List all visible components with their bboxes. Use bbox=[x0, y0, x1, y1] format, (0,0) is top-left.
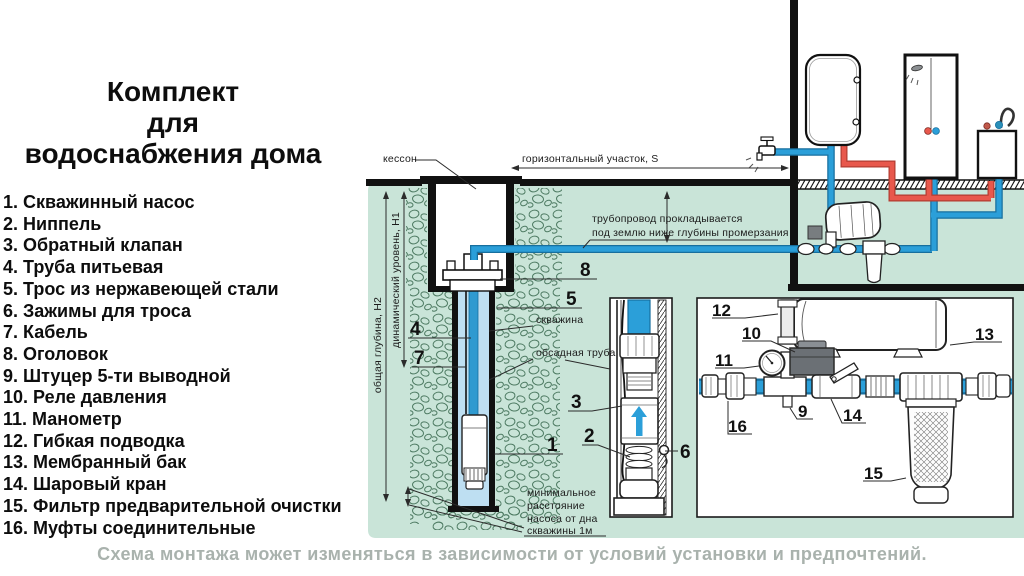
label-caisson: кессон bbox=[383, 153, 417, 165]
callout-3: 3 bbox=[571, 392, 582, 413]
installation-diagram: кессон горизонтальный участок, S трубопр… bbox=[0, 0, 1024, 576]
ground-line bbox=[366, 179, 422, 186]
outdoor-tap-icon bbox=[746, 137, 775, 172]
callout-8: 8 bbox=[580, 260, 591, 281]
label-min-distance-1: минимальное bbox=[527, 487, 596, 499]
label-borehole: скважина bbox=[536, 314, 583, 326]
caisson-lid bbox=[420, 176, 522, 184]
pump-detail-panel bbox=[610, 298, 672, 517]
drop-pipe-detail bbox=[628, 300, 650, 334]
callout-1: 1 bbox=[547, 435, 558, 456]
label-horizontal-section: горизонтальный участок, S bbox=[522, 153, 659, 165]
label-min-distance-3: насоса от дна bbox=[527, 513, 598, 525]
water-heater bbox=[806, 55, 860, 145]
footer-caption: Схема монтажа может изменяться в зависим… bbox=[0, 544, 1024, 565]
callout-12: 12 bbox=[712, 301, 731, 320]
label-casing-pipe: обсадная труба bbox=[536, 347, 616, 359]
callout-2: 2 bbox=[584, 426, 595, 447]
hot-knob bbox=[925, 128, 932, 135]
well-bore bbox=[448, 258, 499, 512]
callout-9: 9 bbox=[798, 402, 807, 421]
label-min-distance-4: скважины 1м bbox=[527, 525, 593, 537]
manometer bbox=[760, 351, 785, 376]
casing-wall bbox=[452, 290, 458, 508]
basement-floor bbox=[788, 284, 1024, 291]
sink bbox=[978, 109, 1016, 178]
cable-clamp bbox=[660, 446, 669, 455]
well-pump bbox=[462, 415, 487, 489]
callout-14: 14 bbox=[843, 406, 862, 425]
casing-wall bbox=[489, 290, 495, 508]
check-valve bbox=[621, 398, 658, 444]
flexible-hose bbox=[778, 300, 797, 344]
pump-top-detail bbox=[614, 480, 664, 515]
label-dynamic-level: динамический уровень, Н1 bbox=[390, 212, 402, 348]
callout-6: 6 bbox=[680, 442, 691, 463]
shower-cabin bbox=[905, 55, 957, 178]
cold-knob bbox=[933, 128, 940, 135]
label-total-depth: общая глубина, Н2 bbox=[372, 297, 384, 393]
callout-13: 13 bbox=[975, 325, 994, 344]
callout-15: 15 bbox=[864, 464, 883, 483]
label-pipeline-note-2: под землю ниже глубины промерзания bbox=[592, 227, 789, 239]
infographic-page: Комплект для водоснабжения дома 1. Скваж… bbox=[0, 0, 1024, 576]
label-min-distance-2: расстояние bbox=[527, 500, 585, 512]
callout-16: 16 bbox=[728, 417, 747, 436]
callout-7: 7 bbox=[414, 348, 425, 369]
callout-5: 5 bbox=[566, 289, 577, 310]
relay-small bbox=[808, 226, 822, 239]
nipple-detail bbox=[626, 446, 652, 480]
callout-11: 11 bbox=[715, 351, 733, 370]
ground-line bbox=[520, 179, 790, 186]
union-nut bbox=[620, 334, 659, 373]
casing-wall-detail bbox=[658, 300, 666, 515]
threaded-collar bbox=[627, 373, 652, 390]
ribbed-union bbox=[866, 376, 894, 397]
label-pipeline-note-1: трубопровод прокладывается bbox=[592, 213, 743, 225]
callout-10: 10 bbox=[742, 324, 761, 343]
callout-4: 4 bbox=[410, 319, 421, 340]
